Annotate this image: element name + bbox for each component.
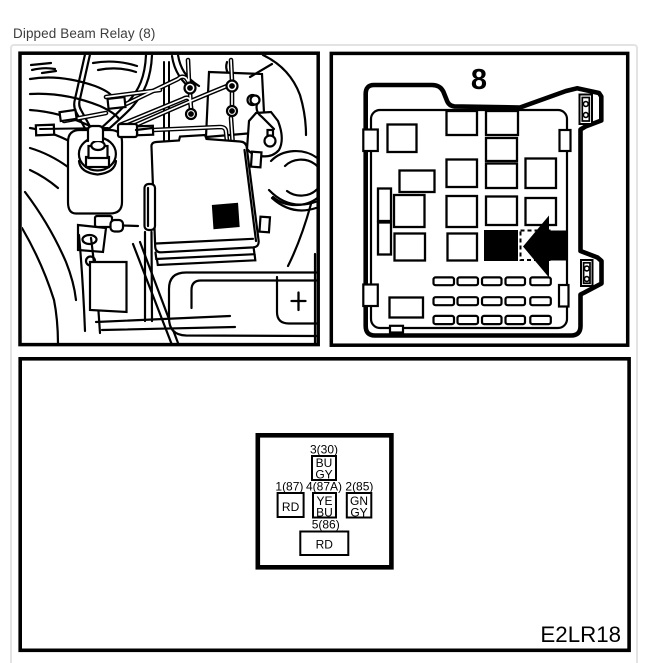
svg-text:GY: GY <box>315 468 332 482</box>
svg-text:BU: BU <box>316 505 333 519</box>
svg-text:E2LR18: E2LR18 <box>540 622 621 647</box>
svg-text:1(87): 1(87) <box>275 480 303 494</box>
svg-text:RD: RD <box>316 538 334 552</box>
svg-text:4(87A): 4(87A) <box>306 480 342 494</box>
svg-text:2(85): 2(85) <box>345 480 373 494</box>
svg-text:RD: RD <box>282 500 300 514</box>
svg-text:GY: GY <box>350 505 367 519</box>
svg-text:8: 8 <box>471 64 487 96</box>
svg-text:3(30): 3(30) <box>310 443 338 457</box>
svg-text:5(86): 5(86) <box>312 518 340 532</box>
